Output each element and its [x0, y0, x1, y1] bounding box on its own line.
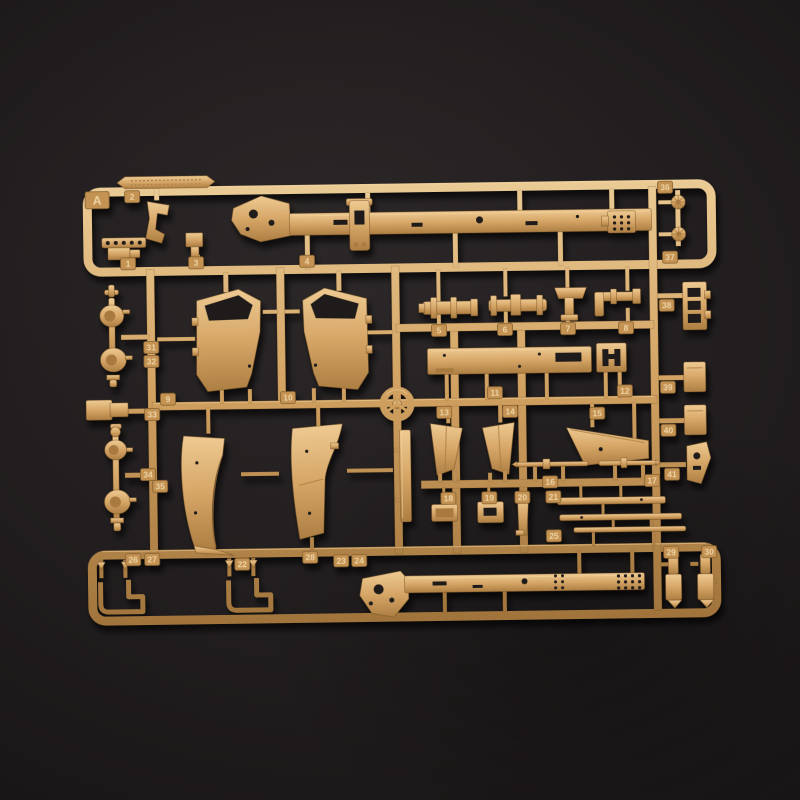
- part-tag-3: 3: [188, 257, 203, 269]
- svg-text:14: 14: [505, 406, 515, 416]
- part-tag-34: 34: [140, 468, 155, 480]
- svg-text:5: 5: [437, 325, 442, 335]
- part-chassis-rail-upper: [231, 190, 652, 252]
- svg-text:20: 20: [518, 492, 528, 502]
- svg-text:12: 12: [620, 386, 630, 396]
- part-tag-40: 40: [661, 424, 676, 436]
- svg-text:A: A: [93, 194, 102, 208]
- runner-vertical-2: [276, 268, 286, 408]
- svg-text:15: 15: [592, 408, 602, 418]
- part-fender-right: [291, 424, 344, 540]
- svg-text:4: 4: [305, 256, 310, 266]
- part-ladder-bracket: [682, 282, 711, 330]
- svg-text:32: 32: [147, 356, 157, 366]
- svg-text:28: 28: [305, 552, 315, 562]
- svg-text:29: 29: [666, 547, 676, 557]
- part-tag-24: 24: [352, 554, 367, 566]
- part-tag-6: 6: [497, 323, 512, 335]
- part-stowage-box-lower: [684, 405, 706, 435]
- svg-text:9: 9: [166, 394, 171, 404]
- svg-text:37: 37: [665, 252, 675, 262]
- part-tag-27: 27: [145, 553, 160, 565]
- part-tag-19: 19: [482, 492, 497, 504]
- part-tag-9: 9: [160, 393, 175, 405]
- svg-text:22: 22: [237, 559, 247, 569]
- photo-stage: A123456789101112131415161718192021222324…: [0, 0, 800, 800]
- part-t-post-mount: [186, 233, 203, 258]
- part-tag-31: 31: [144, 341, 159, 353]
- svg-text:19: 19: [485, 493, 495, 503]
- svg-text:25: 25: [549, 531, 559, 541]
- part-tag-A: A: [85, 192, 109, 209]
- part-tag-21: 21: [546, 491, 561, 503]
- part-driveshaft-cylinder: [489, 294, 547, 316]
- part-mud-flap-bracket-right: [482, 422, 515, 481]
- part-tag-12: 12: [617, 385, 632, 397]
- part-tag-25: 25: [546, 530, 561, 542]
- part-tag-1: 1: [120, 258, 135, 270]
- part-tag-7: 7: [560, 323, 575, 335]
- part-elbow-fitting: [594, 289, 640, 317]
- part-tag-4: 4: [299, 255, 314, 267]
- part-engine-mount: [554, 287, 586, 320]
- part-axle-cylinder: [419, 297, 478, 319]
- svg-text:36: 36: [660, 182, 670, 192]
- svg-text:23: 23: [336, 556, 346, 566]
- svg-text:34: 34: [143, 469, 153, 479]
- part-cab-door-right: [302, 287, 372, 390]
- part-tag-35: 35: [153, 480, 168, 492]
- part-tag-10: 10: [280, 391, 295, 403]
- part-tag-17: 17: [645, 474, 660, 486]
- svg-text:26: 26: [128, 555, 138, 565]
- part-tag-20: 20: [515, 491, 530, 503]
- svg-text:10: 10: [283, 392, 293, 402]
- part-tag-23: 23: [334, 555, 349, 567]
- part-hatch-plate: [431, 504, 457, 521]
- part-tag-32: 32: [144, 355, 159, 367]
- svg-text:18: 18: [444, 493, 454, 503]
- svg-text:33: 33: [147, 409, 157, 419]
- svg-text:8: 8: [624, 323, 629, 333]
- svg-text:30: 30: [704, 547, 714, 557]
- part-tag-29: 29: [664, 546, 679, 558]
- part-tag-11: 11: [487, 387, 502, 399]
- svg-text:41: 41: [667, 469, 677, 479]
- part-fender-left: [181, 435, 234, 556]
- part-cab-door-left: [191, 289, 261, 392]
- part-angled-bracket: [687, 442, 712, 484]
- svg-text:24: 24: [354, 556, 364, 566]
- part-towing-hook-left: [97, 560, 143, 613]
- part-tag-16: 16: [543, 476, 558, 488]
- part-tag-15: 15: [590, 407, 605, 419]
- part-shackle-pin-right: [697, 554, 714, 608]
- svg-text:3: 3: [194, 258, 199, 268]
- sprue-frame: [87, 180, 717, 621]
- svg-text:39: 39: [663, 382, 673, 392]
- part-tag-2: 2: [125, 191, 140, 203]
- part-side-sill-panel: [427, 346, 591, 374]
- svg-text:38: 38: [662, 300, 672, 310]
- part-tag-30: 30: [702, 546, 717, 558]
- part-tag-41: 41: [664, 468, 679, 480]
- part-side-plank: [399, 430, 411, 522]
- svg-text:7: 7: [566, 324, 571, 334]
- part-tag-33: 33: [145, 408, 160, 420]
- part-frame-bars: [557, 496, 685, 533]
- part-slotted-plate: [477, 502, 503, 523]
- svg-text:40: 40: [664, 425, 674, 435]
- sprue-photo: A123456789101112131415161718192021222324…: [0, 0, 800, 800]
- svg-text:16: 16: [545, 477, 555, 487]
- part-tag-8: 8: [618, 322, 633, 334]
- part-tag-36: 36: [657, 181, 672, 193]
- part-tag-18: 18: [441, 492, 456, 504]
- part-small-lever: [145, 201, 170, 243]
- part-tag-26: 26: [126, 554, 141, 566]
- part-sprockets: [671, 190, 686, 246]
- part-drilled-strip-bracket: [102, 238, 146, 261]
- embossed-brand-strip: [117, 176, 215, 189]
- part-tag-28: 28: [303, 551, 318, 563]
- part-tag-38: 38: [659, 299, 674, 311]
- part-tag-13: 13: [437, 406, 452, 418]
- part-gearbox-block: [86, 400, 128, 421]
- svg-text:6: 6: [503, 324, 508, 334]
- part-tag-22: 22: [235, 558, 250, 570]
- svg-text:11: 11: [490, 388, 499, 398]
- svg-text:27: 27: [147, 554, 157, 564]
- part-tag-14: 14: [503, 405, 518, 417]
- part-slotted-box-plate: [596, 343, 626, 372]
- svg-text:35: 35: [155, 481, 165, 491]
- svg-text:21: 21: [549, 492, 559, 502]
- svg-text:13: 13: [439, 407, 449, 417]
- part-stowage-box-upper: [683, 362, 705, 392]
- part-tag-5: 5: [431, 324, 446, 336]
- svg-text:31: 31: [146, 342, 156, 352]
- part-tag-39: 39: [660, 381, 675, 393]
- svg-text:2: 2: [130, 192, 135, 202]
- svg-text:1: 1: [126, 259, 131, 269]
- svg-text:17: 17: [647, 475, 657, 485]
- part-tag-37: 37: [662, 251, 677, 263]
